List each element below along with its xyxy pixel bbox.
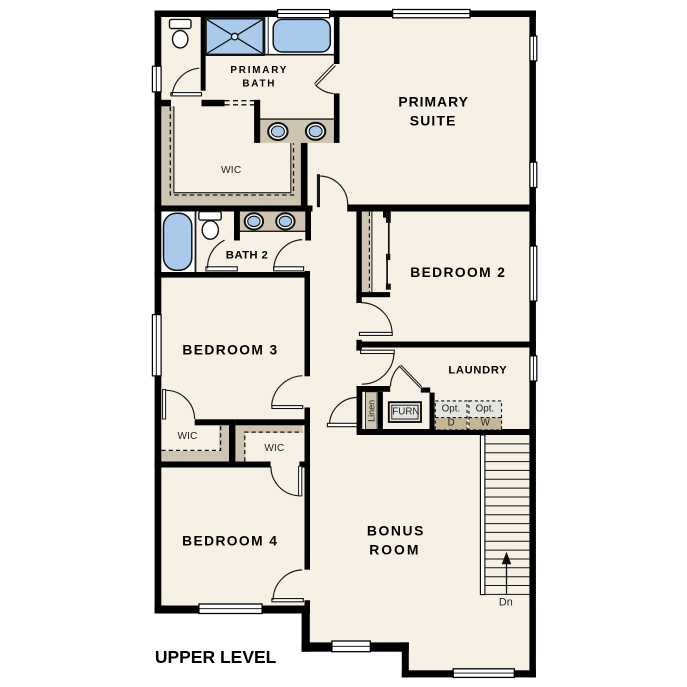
- svg-text:BEDROOM 2: BEDROOM 2: [410, 265, 506, 280]
- svg-text:WIC: WIC: [221, 165, 241, 176]
- svg-text:WIC: WIC: [177, 431, 197, 442]
- svg-text:LAUNDRY: LAUNDRY: [448, 365, 507, 377]
- svg-text:Opt.: Opt.: [476, 404, 495, 415]
- svg-text:SUITE: SUITE: [410, 113, 457, 129]
- svg-text:BATH: BATH: [242, 79, 276, 90]
- svg-text:Dn: Dn: [499, 597, 513, 609]
- svg-text:PRIMARY: PRIMARY: [398, 94, 469, 110]
- svg-text:BONUS: BONUS: [367, 523, 425, 539]
- svg-text:PRIMARY: PRIMARY: [230, 65, 288, 76]
- svg-text:BEDROOM 4: BEDROOM 4: [182, 534, 278, 549]
- svg-text:BEDROOM 3: BEDROOM 3: [182, 342, 278, 357]
- svg-text:W: W: [481, 418, 491, 429]
- svg-text:Linen: Linen: [367, 400, 377, 422]
- svg-text:Opt.: Opt.: [442, 404, 461, 415]
- svg-text:WIC: WIC: [264, 443, 284, 454]
- svg-text:ROOM: ROOM: [369, 541, 420, 557]
- svg-text:D: D: [448, 418, 455, 429]
- svg-text:UPPER LEVEL: UPPER LEVEL: [155, 647, 277, 667]
- svg-text:FURN: FURN: [392, 407, 419, 418]
- svg-text:BATH 2: BATH 2: [226, 250, 268, 262]
